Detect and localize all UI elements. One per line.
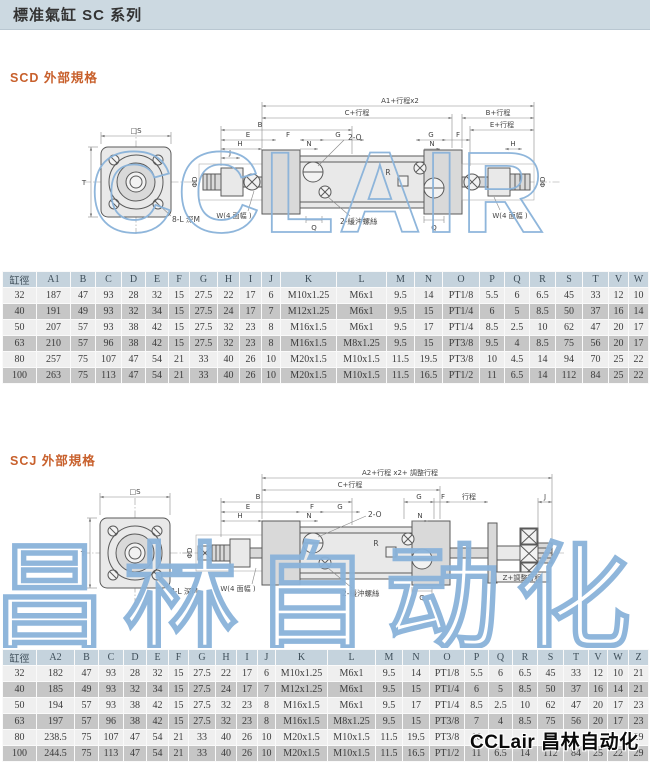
table-cell: 32: [147, 666, 169, 682]
table-cell: 50: [538, 682, 564, 698]
table-cell: 112: [556, 368, 583, 384]
column-header: N: [415, 272, 443, 288]
table-cell: 32: [216, 714, 237, 730]
table-cell: 33: [190, 352, 218, 368]
column-header: K: [281, 272, 337, 288]
column-header: S: [556, 272, 583, 288]
table-cell: 9.5: [480, 336, 505, 352]
table-cell: 32: [124, 682, 147, 698]
column-header: F: [169, 650, 189, 666]
table-cell: 54: [147, 730, 169, 746]
table-cell: 19.5: [403, 730, 430, 746]
scj-dim-square: □S: [129, 488, 141, 496]
table-cell: 15: [403, 682, 430, 698]
table-cell: 40: [216, 730, 237, 746]
table-cell: 24: [218, 304, 240, 320]
table-cell: 8: [262, 320, 281, 336]
table-cell: 8.5: [530, 336, 556, 352]
table-cell: 62: [556, 320, 583, 336]
column-header: T: [564, 650, 589, 666]
table-cell: 80: [3, 730, 37, 746]
table-cell: PT1/4: [443, 320, 480, 336]
table-cell: 17: [608, 698, 629, 714]
table-cell: M6x1: [337, 320, 387, 336]
table-cell: M10x1.5: [337, 368, 387, 384]
table-cell: 47: [71, 288, 96, 304]
table-cell: 100: [3, 746, 37, 762]
column-header: 缸徑: [3, 650, 37, 666]
table-cell: 15: [169, 698, 189, 714]
table-cell: 37: [564, 682, 589, 698]
table-cell: 9.5: [387, 320, 415, 336]
table-cell: 107: [96, 352, 122, 368]
table-cell: 27.5: [190, 304, 218, 320]
table-cell: 187: [37, 288, 71, 304]
table-cell: 20: [609, 336, 629, 352]
scd-watermark: CCLAIR: [90, 129, 548, 257]
table-cell: 93: [96, 304, 122, 320]
table-cell: 38: [122, 336, 146, 352]
table-cell: PT1/4: [430, 698, 465, 714]
scd-diagram: □S T 8-L 深M R: [0, 92, 650, 270]
table-cell: 6.5: [513, 666, 538, 682]
table-cell: 8: [258, 714, 276, 730]
column-header: D: [122, 272, 146, 288]
table-cell: 45: [556, 288, 583, 304]
table-cell: 6: [465, 682, 489, 698]
column-header: B: [75, 650, 99, 666]
table-cell: 47: [564, 698, 589, 714]
table-cell: 207: [37, 320, 71, 336]
table-cell: 263: [37, 368, 71, 384]
table-cell: 75: [71, 352, 96, 368]
table-cell: 11: [480, 368, 505, 384]
table-cell: 63: [3, 714, 37, 730]
table-cell: 47: [75, 666, 99, 682]
table-cell: 63: [3, 336, 37, 352]
table-cell: 15: [415, 304, 443, 320]
scd-dim-t: T: [81, 179, 87, 187]
table-cell: 10: [629, 288, 649, 304]
column-header: V: [589, 650, 608, 666]
column-header: H: [216, 650, 237, 666]
scd-dim-e2: E+行程: [490, 120, 514, 129]
table-cell: 21: [169, 746, 189, 762]
table-cell: PT1/2: [443, 368, 480, 384]
scj-dim-n: N: [306, 512, 311, 520]
table-cell: 11.5: [387, 352, 415, 368]
column-header: E: [146, 272, 169, 288]
table-cell: 26: [240, 368, 262, 384]
table-cell: 15: [169, 666, 189, 682]
table-cell: M12x1.25: [281, 304, 337, 320]
table-cell: 10: [258, 730, 276, 746]
table-cell: 2.5: [489, 698, 513, 714]
scj-label-ports: 2-O: [368, 510, 382, 519]
table-cell: 50: [3, 320, 37, 336]
table-cell: 40: [218, 368, 240, 384]
table-cell: 210: [37, 336, 71, 352]
table-cell: 9.5: [376, 714, 403, 730]
table-cell: 4.5: [505, 352, 530, 368]
table-cell: 11.5: [376, 746, 403, 762]
table-cell: 93: [96, 320, 122, 336]
table-cell: 17: [237, 666, 258, 682]
column-header: C: [99, 650, 124, 666]
table-cell: 15: [169, 288, 190, 304]
table-cell: 7: [258, 682, 276, 698]
table-cell: 17: [403, 698, 430, 714]
table-cell: 10: [513, 698, 538, 714]
table-cell: 5: [489, 682, 513, 698]
table-cell: PT3/8: [443, 336, 480, 352]
column-header: W: [629, 272, 649, 288]
table-cell: 33: [189, 730, 216, 746]
table-cell: M6x1: [337, 304, 387, 320]
table-cell: M10x1.5: [328, 730, 376, 746]
table-cell: 47: [124, 746, 147, 762]
table-cell: 27.5: [190, 336, 218, 352]
table-cell: 40: [218, 352, 240, 368]
table-cell: 34: [146, 304, 169, 320]
table-cell: M16x1.5: [281, 336, 337, 352]
scd-dim-c: C+行程: [345, 108, 370, 117]
table-cell: 20: [589, 698, 608, 714]
table-cell: 42: [146, 336, 169, 352]
table-cell: M6x1: [328, 666, 376, 682]
table-cell: 38: [124, 714, 147, 730]
table-cell: 6: [489, 666, 513, 682]
scj-dim-n-right: N: [417, 512, 422, 520]
table-cell: M20x1.5: [281, 368, 337, 384]
column-header: I: [240, 272, 262, 288]
table-cell: 28: [124, 666, 147, 682]
table-cell: 32: [3, 666, 37, 682]
table-cell: 15: [415, 336, 443, 352]
table-cell: 8: [262, 336, 281, 352]
table-cell: 33: [190, 368, 218, 384]
page-title: 標准氣缸 SC 系列: [13, 4, 142, 25]
table-cell: 17: [629, 336, 649, 352]
table-cell: 37: [583, 304, 609, 320]
table-cell: 26: [237, 730, 258, 746]
table-cell: M12x1.25: [276, 682, 328, 698]
table-cell: 12: [609, 288, 629, 304]
table-cell: 21: [169, 352, 190, 368]
table-cell: 38: [122, 320, 146, 336]
table-cell: 28: [122, 288, 146, 304]
table-cell: 45: [538, 666, 564, 682]
column-header: Q: [489, 650, 513, 666]
table-cell: 19.5: [415, 352, 443, 368]
table-cell: 24: [216, 682, 237, 698]
column-header: W: [608, 650, 629, 666]
table-cell: 34: [147, 682, 169, 698]
table-row: 40191499332341527.524177M12x1.25M6x19.51…: [3, 304, 649, 320]
table-cell: 49: [71, 304, 96, 320]
table-cell: 8: [258, 698, 276, 714]
column-header: B: [71, 272, 96, 288]
table-cell: M20x1.5: [276, 746, 328, 762]
scj-dim-g-right: G: [416, 493, 421, 501]
table-cell: 40: [216, 746, 237, 762]
table-cell: 32: [3, 288, 37, 304]
table-row: 32182479328321527.522176M10x1.25M6x19.51…: [3, 666, 649, 682]
table-cell: 57: [75, 698, 99, 714]
table-cell: 25: [609, 368, 629, 384]
page-header: 標准氣缸 SC 系列: [0, 0, 650, 30]
table-cell: 47: [124, 730, 147, 746]
table-cell: 9.5: [376, 682, 403, 698]
table-cell: 9.5: [387, 288, 415, 304]
table-cell: 38: [124, 698, 147, 714]
scj-dim-stroke: 行程: [462, 492, 476, 501]
column-header: P: [480, 272, 505, 288]
table-cell: M16x1.5: [276, 714, 328, 730]
table-row: 1002637511347542133402610M20x1.5M10x1.51…: [3, 368, 649, 384]
scj-dim-j: J: [543, 493, 546, 501]
table-cell: 16.5: [403, 746, 430, 762]
table-cell: 6.5: [505, 368, 530, 384]
table-cell: 32: [218, 336, 240, 352]
scj-dim-b: B: [256, 493, 261, 501]
table-cell: M20x1.5: [281, 352, 337, 368]
table-cell: 185: [37, 682, 75, 698]
table-cell: 113: [96, 368, 122, 384]
table-cell: 6: [505, 288, 530, 304]
table-cell: 33: [564, 666, 589, 682]
table-cell: 182: [37, 666, 75, 682]
table-cell: 6.5: [530, 288, 556, 304]
table-cell: PT3/8: [430, 714, 465, 730]
column-header: O: [443, 272, 480, 288]
table-cell: 70: [583, 352, 609, 368]
table-cell: 9.5: [387, 336, 415, 352]
table-cell: 27.5: [190, 320, 218, 336]
scj-diagram: □S T 8-L 深M R: [0, 466, 650, 648]
table-cell: 22: [216, 666, 237, 682]
table-cell: 14: [530, 368, 556, 384]
table-cell: 16: [589, 682, 608, 698]
section-heading-scd: SCD 外部規格: [10, 67, 98, 86]
table-cell: 9.5: [376, 698, 403, 714]
table-cell: 40: [3, 304, 37, 320]
table-row: 802577510747542133402610M20x1.5M10x1.511…: [3, 352, 649, 368]
table-cell: M20x1.5: [276, 730, 328, 746]
table-cell: 42: [146, 320, 169, 336]
table-cell: M8x1.25: [337, 336, 387, 352]
column-header: G: [190, 272, 218, 288]
table-cell: 10: [530, 320, 556, 336]
table-cell: 54: [146, 368, 169, 384]
column-header: E: [147, 650, 169, 666]
table-cell: 7: [262, 304, 281, 320]
table-cell: 14: [415, 288, 443, 304]
table-cell: 20: [609, 320, 629, 336]
table-cell: M6x1: [337, 288, 387, 304]
table-cell: 21: [629, 682, 649, 698]
table-cell: 15: [169, 336, 190, 352]
column-header: M: [376, 650, 403, 666]
column-header: R: [513, 650, 538, 666]
table-cell: 84: [583, 368, 609, 384]
column-header: R: [530, 272, 556, 288]
table-cell: 56: [583, 336, 609, 352]
column-header: A1: [37, 272, 71, 288]
table-cell: 22: [629, 368, 649, 384]
table-cell: 9.5: [387, 304, 415, 320]
table-cell: 2.5: [505, 320, 530, 336]
table-cell: 10: [258, 746, 276, 762]
table-cell: 32: [146, 288, 169, 304]
table-cell: 17: [237, 682, 258, 698]
table-row: 32187479328321527.522176M10x1.25M6x19.51…: [3, 288, 649, 304]
table-cell: 23: [240, 336, 262, 352]
table-cell: 17: [240, 304, 262, 320]
column-header: D: [124, 650, 147, 666]
table-cell: M6x1: [328, 682, 376, 698]
table-cell: 4: [505, 336, 530, 352]
table-cell: 42: [147, 714, 169, 730]
column-header: J: [258, 650, 276, 666]
table-cell: 25: [609, 352, 629, 368]
table-cell: M10x1.25: [276, 666, 328, 682]
table-cell: M8x1.25: [328, 714, 376, 730]
table-row: 50194579338421527.532238M16x1.5M6x19.517…: [3, 698, 649, 714]
table-cell: 96: [96, 336, 122, 352]
table-cell: 9.5: [376, 666, 403, 682]
table-cell: 6: [258, 666, 276, 682]
scj-dim-g: G: [337, 503, 342, 511]
table-cell: 10: [480, 352, 505, 368]
table-cell: 26: [240, 352, 262, 368]
table-cell: 75: [75, 746, 99, 762]
column-header: T: [583, 272, 609, 288]
scj-watermark: 昌林自动化: [0, 535, 647, 648]
table-cell: 22: [218, 288, 240, 304]
table-cell: 14: [629, 304, 649, 320]
table-cell: 8.5: [480, 320, 505, 336]
column-header: H: [218, 272, 240, 288]
column-header: A2: [37, 650, 75, 666]
column-header: K: [276, 650, 328, 666]
table-cell: 15: [169, 304, 190, 320]
table-cell: 197: [37, 714, 75, 730]
column-header: L: [328, 650, 376, 666]
table-cell: 93: [99, 698, 124, 714]
table-cell: 5: [505, 304, 530, 320]
table-cell: 27.5: [189, 666, 216, 682]
table-cell: 194: [37, 698, 75, 714]
table-cell: 49: [75, 682, 99, 698]
table-cell: M10x1.25: [281, 288, 337, 304]
table-cell: 17: [629, 320, 649, 336]
table-cell: 107: [99, 730, 124, 746]
table-cell: 54: [147, 746, 169, 762]
table-cell: 244.5: [37, 746, 75, 762]
scj-dim-a2: A2+行程 x2+ 調整行程: [362, 468, 438, 477]
table-cell: 33: [189, 746, 216, 762]
table-cell: PT1/8: [430, 666, 465, 682]
table-cell: 54: [146, 352, 169, 368]
table-cell: 21: [169, 730, 189, 746]
table-cell: 23: [237, 714, 258, 730]
table-cell: 100: [3, 368, 37, 384]
table-cell: 21: [629, 666, 649, 682]
column-header: P: [465, 650, 489, 666]
scj-dim-c: C+行程: [338, 480, 363, 489]
table-cell: PT3/8: [443, 352, 480, 368]
table-cell: 96: [99, 714, 124, 730]
column-header: 缸徑: [3, 272, 37, 288]
table-cell: 22: [629, 352, 649, 368]
table-cell: 32: [216, 698, 237, 714]
table-cell: 17: [415, 320, 443, 336]
table-cell: 57: [71, 320, 96, 336]
table-header-row: 缸徑A1BCDEFGHIJKLMNOPQRSTVW: [3, 272, 649, 288]
table-cell: 5.5: [465, 666, 489, 682]
table-cell: 16: [609, 304, 629, 320]
table-cell: PT1/4: [443, 304, 480, 320]
table-cell: 113: [99, 746, 124, 762]
corner-watermark: CCLair 昌林自动化: [470, 727, 639, 754]
table-cell: 42: [147, 698, 169, 714]
table-cell: 14: [403, 666, 430, 682]
column-header: F: [169, 272, 190, 288]
scj-dim-f: F: [310, 503, 314, 511]
table-cell: 14: [608, 682, 629, 698]
table-cell: 17: [240, 288, 262, 304]
table-cell: 40: [3, 682, 37, 698]
table-cell: 238.5: [37, 730, 75, 746]
table-row: 50207579338421527.532238M16x1.5M6x19.517…: [3, 320, 649, 336]
table-cell: 57: [71, 336, 96, 352]
table-cell: 27.5: [189, 682, 216, 698]
column-header: L: [337, 272, 387, 288]
table-cell: 10: [608, 666, 629, 682]
table-cell: 6: [480, 304, 505, 320]
table-cell: 47: [583, 320, 609, 336]
table-cell: 15: [169, 714, 189, 730]
table-cell: 15: [169, 320, 190, 336]
table-cell: 5.5: [480, 288, 505, 304]
table-cell: PT1/4: [430, 682, 465, 698]
table-cell: 257: [37, 352, 71, 368]
table-cell: 15: [403, 714, 430, 730]
scj-dim-f-right: F: [441, 493, 445, 501]
table-cell: 27.5: [190, 288, 218, 304]
table-cell: M10x1.5: [328, 746, 376, 762]
table-cell: PT1/8: [443, 288, 480, 304]
table-cell: 93: [99, 682, 124, 698]
table-cell: 80: [3, 352, 37, 368]
table-cell: 8.5: [465, 698, 489, 714]
table-cell: 14: [530, 352, 556, 368]
column-header: Z: [629, 650, 649, 666]
table-cell: 47: [122, 368, 146, 384]
table-cell: 191: [37, 304, 71, 320]
table-cell: M16x1.5: [276, 698, 328, 714]
column-header: Q: [505, 272, 530, 288]
table-cell: 75: [556, 336, 583, 352]
column-header: J: [262, 272, 281, 288]
catalog-page: 標准氣缸 SC 系列 SCD 外部規格 □S T: [0, 0, 650, 767]
table-cell: M10x1.5: [337, 352, 387, 368]
table-cell: 62: [538, 698, 564, 714]
table-cell: 32: [218, 320, 240, 336]
table-cell: 23: [237, 698, 258, 714]
table-cell: 50: [556, 304, 583, 320]
